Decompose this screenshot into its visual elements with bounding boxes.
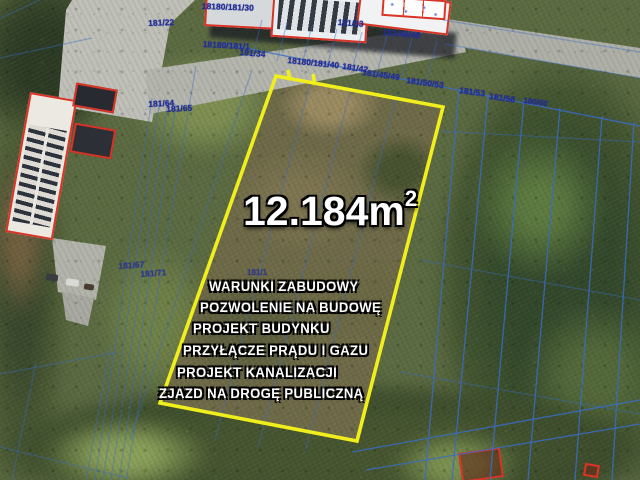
parked-vehicle <box>84 283 95 290</box>
parked-vehicle <box>46 273 59 282</box>
area-value: 12.184m <box>243 188 405 234</box>
feature-line: PRZYŁĄCZE PRĄDU I GAZU <box>183 343 368 358</box>
feature-line: POZWOLENIE NA BUDOWĘ <box>200 300 381 315</box>
parcel-label: 181/71 <box>140 267 167 279</box>
feature-line: PROJEKT KANALIZACJI <box>177 365 337 380</box>
area-exponent: 2 <box>405 186 417 211</box>
parcel-label: 181/33 <box>337 17 364 29</box>
plot-area-label: 12.184m2 <box>243 188 417 235</box>
red-roof-structure-bottom <box>458 447 504 480</box>
feature-line: WARUNKI ZABUDOWY <box>209 279 359 294</box>
parcel-label: 18180/181/30 <box>202 1 254 13</box>
parcel-label: 181/65 <box>166 103 192 114</box>
aerial-map-view: 181/22 18180/181/1 181/34 18180/181/40 1… <box>0 0 640 480</box>
parcel-label: 181/22 <box>148 17 174 28</box>
photo-grain-texture <box>0 0 640 480</box>
red-marker-bottom-right <box>583 463 600 478</box>
feature-line: ZJAZD NA DROGĘ PUBLICZNĄ <box>159 386 364 401</box>
parcel-label: 181/1 <box>247 268 267 277</box>
parcel-label: 181/34 <box>239 47 266 59</box>
feature-line: PROJEKT BUDYNKU <box>193 321 330 336</box>
